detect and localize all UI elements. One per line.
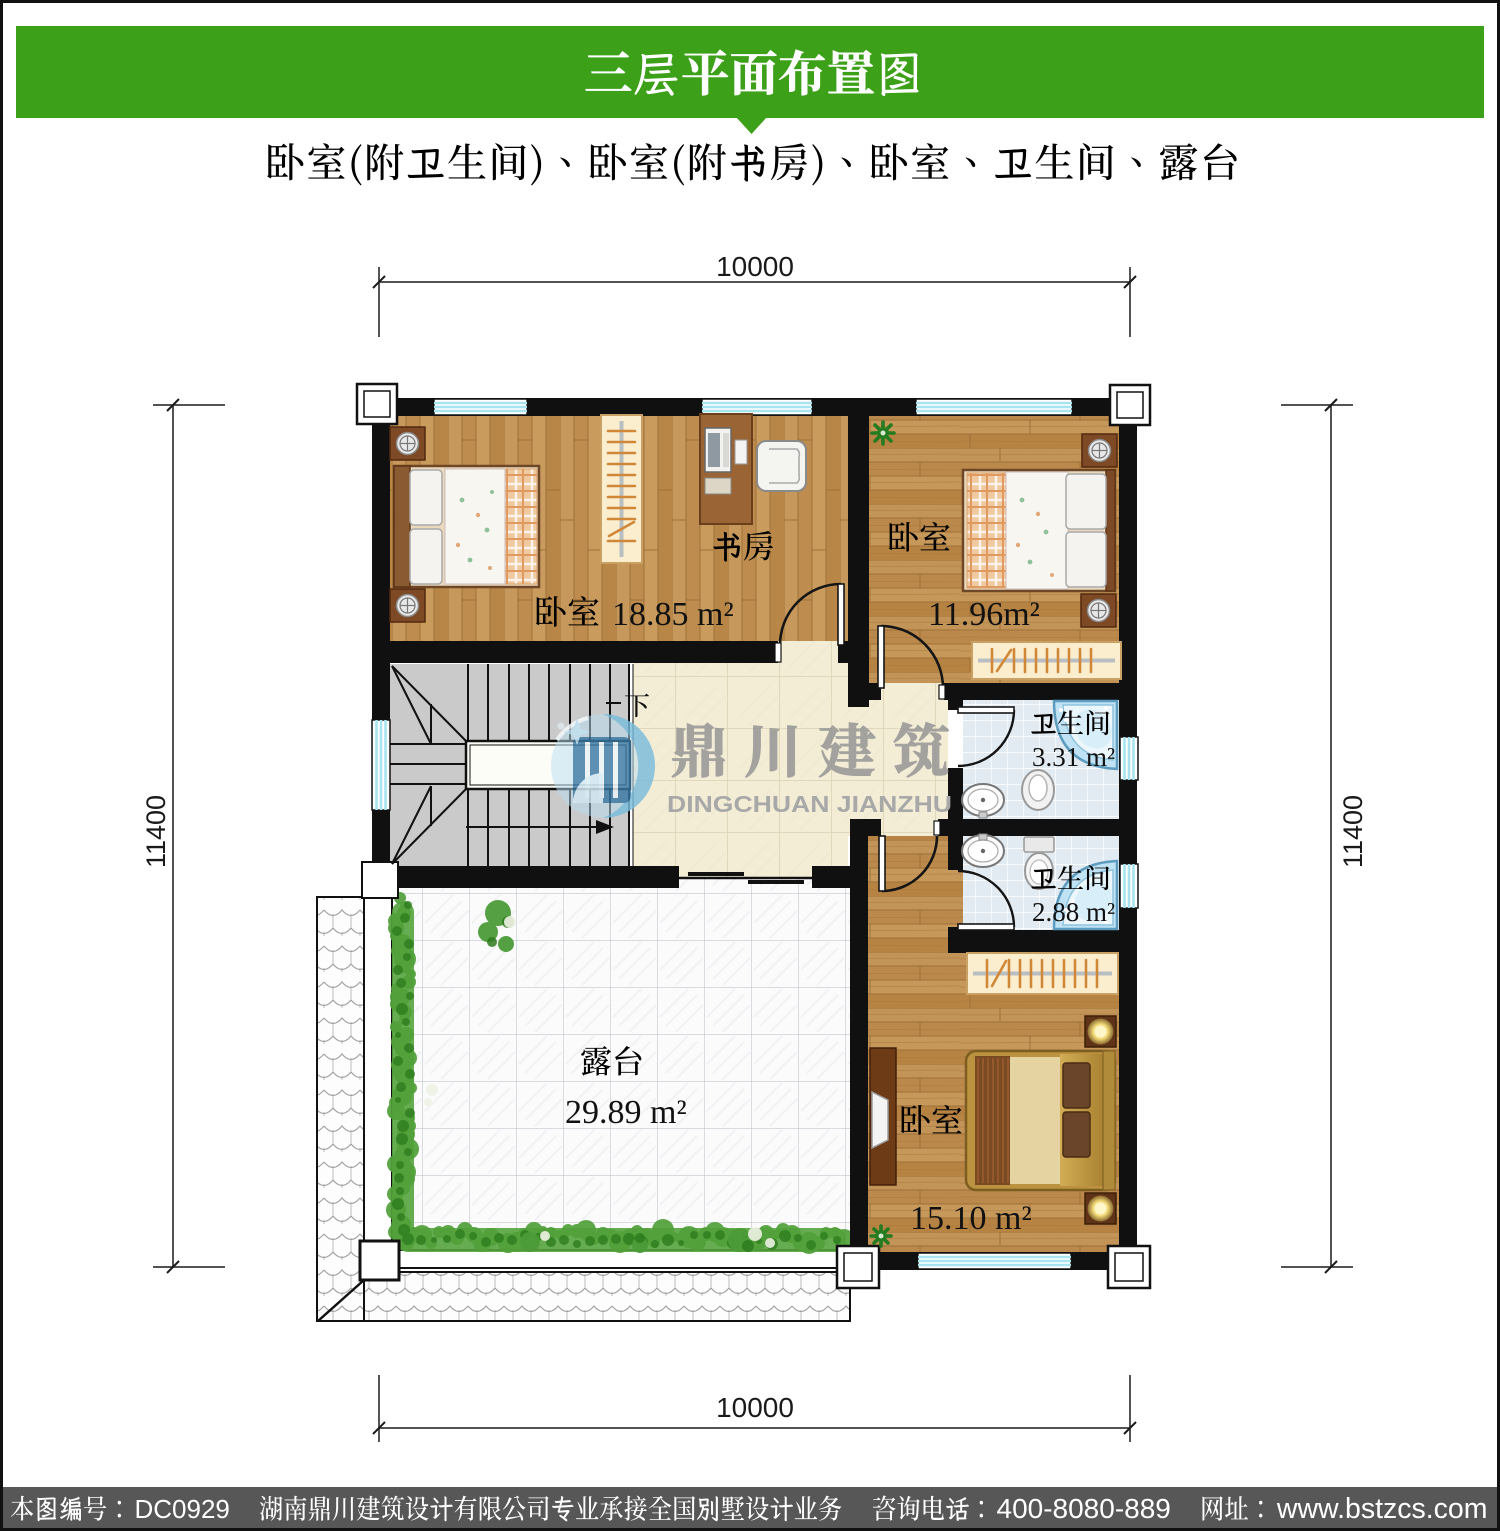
svg-text:400-8080-889: 400-8080-889 — [997, 1493, 1171, 1524]
svg-text:10000: 10000 — [716, 251, 794, 282]
svg-text:2.88 m²: 2.88 m² — [1032, 897, 1115, 927]
svg-text:3.31 m²: 3.31 m² — [1032, 742, 1115, 772]
svg-text:15.10 m²: 15.10 m² — [910, 1200, 1032, 1237]
svg-text:11.96m²: 11.96m² — [928, 596, 1040, 633]
svg-text:DC0929: DC0929 — [135, 1494, 230, 1524]
svg-text:DINGCHUAN JIANZHU: DINGCHUAN JIANZHU — [667, 791, 952, 817]
svg-text:11400: 11400 — [141, 795, 171, 868]
svg-text:www.bstzcs.com: www.bstzcs.com — [1276, 1493, 1488, 1525]
svg-text:11400: 11400 — [1338, 795, 1368, 868]
svg-text:29.89 m²: 29.89 m² — [565, 1094, 687, 1131]
svg-text:10000: 10000 — [716, 1392, 794, 1423]
svg-text:18.85 m²: 18.85 m² — [612, 596, 734, 633]
